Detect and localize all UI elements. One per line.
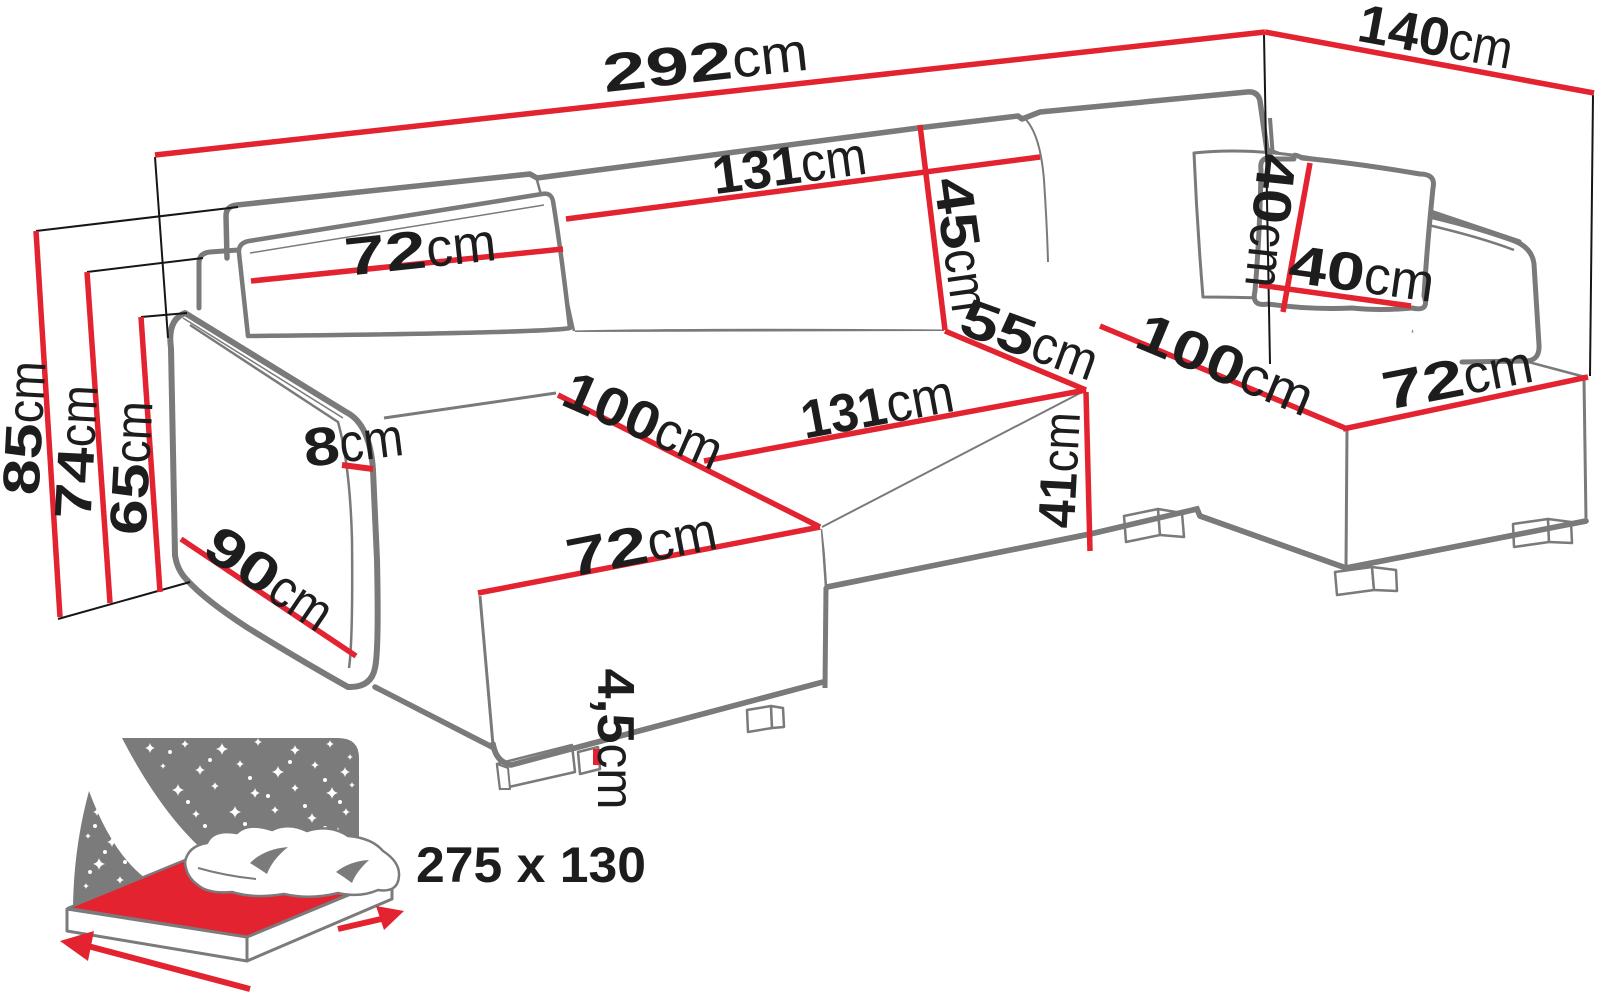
svg-text:72: 72 (341, 220, 429, 288)
svg-text:cm: cm (0, 360, 57, 425)
svg-text:40: 40 (1285, 234, 1369, 304)
svg-text:cm: cm (881, 363, 959, 434)
svg-text:cm: cm (1361, 245, 1439, 314)
svg-text:74: 74 (45, 445, 107, 520)
svg-text:40: 40 (1240, 151, 1307, 227)
svg-text:cm: cm (423, 212, 499, 279)
svg-text:cm: cm (1444, 10, 1518, 81)
svg-text:cm: cm (103, 400, 164, 465)
svg-text:65: 65 (100, 462, 162, 537)
svg-text:cm: cm (336, 407, 407, 474)
svg-text:cm: cm (48, 384, 109, 449)
svg-text:275 x 130: 275 x 130 (416, 837, 646, 893)
svg-text:131: 131 (708, 135, 804, 206)
svg-text:41: 41 (1028, 471, 1089, 530)
svg-text:cm: cm (1031, 411, 1092, 474)
svg-text:cm: cm (729, 22, 811, 90)
svg-text:cm: cm (797, 126, 870, 194)
svg-text:cm: cm (586, 744, 644, 810)
svg-text:45: 45 (922, 173, 991, 253)
svg-text:4,5: 4,5 (586, 669, 644, 744)
